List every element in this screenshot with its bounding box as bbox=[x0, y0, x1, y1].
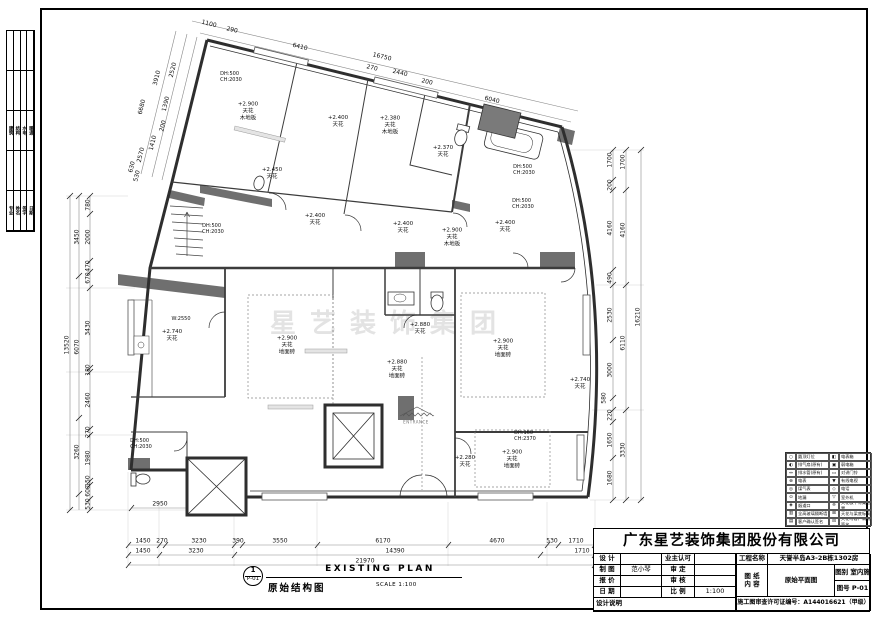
dimension-label: 1710 bbox=[574, 548, 589, 555]
room-label: +2.740天花 bbox=[570, 377, 590, 391]
legend-label: 室外机 bbox=[839, 493, 872, 501]
legend-label: 煤气表 bbox=[796, 485, 829, 493]
title-underline bbox=[266, 577, 462, 578]
value-approve bbox=[695, 565, 736, 576]
legend-label: 对讲门铃 bbox=[839, 469, 872, 477]
dimension-label: 6170 bbox=[375, 538, 390, 545]
sheet-no-cell: 图号 P-01 bbox=[835, 581, 871, 597]
legend-symbol: ▥ bbox=[786, 510, 796, 518]
room-label: +2.880天花地面砖 bbox=[387, 359, 407, 380]
strip-text: 暖通 bbox=[28, 126, 33, 135]
dimension-label: 16210 bbox=[635, 307, 642, 326]
legend-label: 客户确认签名 bbox=[796, 518, 829, 526]
dimension-label: 1650 bbox=[607, 432, 614, 447]
value-quote bbox=[621, 576, 662, 587]
room-label: +2.450天花 bbox=[262, 167, 282, 181]
label-design-notes: 设计说明 bbox=[594, 598, 736, 611]
value-design bbox=[621, 554, 662, 565]
dimension-label: 1980 bbox=[85, 450, 92, 465]
door-height-annotation: DH:500CH:2030 bbox=[512, 198, 534, 211]
dimension-label: 6110 bbox=[620, 335, 627, 350]
label-owner-ok: 业主认可 bbox=[662, 554, 695, 565]
dimension-label: 2950 bbox=[152, 501, 167, 508]
door-height-annotation: DH:160CH:2370 bbox=[514, 430, 536, 443]
symbol-legend: ○圆顶灯位◧电表箱 ◐排气扇(原有)▣弱电箱 ↔排水管(原有)▭对讲门铃 ⊕电表… bbox=[785, 452, 871, 527]
strip-text: 签字 bbox=[21, 206, 26, 215]
legend-symbol: ⊞ bbox=[829, 510, 839, 518]
strip-text: 水电 bbox=[21, 126, 26, 135]
legend-label: 圆顶灯位 bbox=[796, 453, 829, 461]
room-label: +2.400天花 bbox=[328, 115, 348, 129]
value-drawing-content: 原始平面图 bbox=[768, 565, 835, 597]
dimension-label: 670 bbox=[85, 272, 92, 283]
legend-label: 电表箱 bbox=[839, 453, 872, 461]
legend-symbol: ◇ bbox=[829, 485, 839, 493]
legend-label: 排气扇(原有) bbox=[796, 461, 829, 469]
legend-symbol: ※ bbox=[829, 502, 839, 510]
label-quote: 报 价 bbox=[594, 576, 621, 587]
legend-symbol: ▭ bbox=[829, 469, 839, 477]
value-review bbox=[695, 576, 736, 587]
dimension-label: 4670 bbox=[489, 538, 504, 545]
dimension-label: 13520 bbox=[64, 335, 71, 354]
dimension-label: 2000 bbox=[85, 229, 92, 244]
dimension-label: 4160 bbox=[607, 220, 614, 235]
door-height-annotation: DH:500CH:2030 bbox=[130, 438, 152, 451]
dimension-label: 14390 bbox=[385, 548, 404, 555]
dimension-label: 3450 bbox=[74, 229, 81, 244]
room-label: +2.280天花 bbox=[455, 455, 475, 469]
dimension-label: 270 bbox=[156, 538, 167, 545]
dimension-label: 1450 bbox=[135, 538, 150, 545]
legend-label: 天花与客户确认签名 bbox=[839, 518, 872, 526]
label-draft: 制 图 bbox=[594, 565, 621, 576]
legend-symbol: ⊙ bbox=[786, 493, 796, 501]
title-block-left: 设 计 业主认可 制 图 范小琴 审 定 报 价 审 核 日 期 比 例 1:1… bbox=[594, 554, 737, 611]
room-label: +2.900天花木地板 bbox=[238, 101, 258, 122]
title-block-right: 工程名称 天誉半岛A3-2B栋1302房 图 纸 内 容 原始平面图 图别 室内… bbox=[737, 554, 871, 611]
legend-symbol: ▣ bbox=[829, 461, 839, 469]
legend-symbol: ⊕ bbox=[786, 477, 796, 485]
room-label: +2.400天花 bbox=[305, 213, 325, 227]
legend-label: 排水管(原有) bbox=[796, 469, 829, 477]
dimension-label: 470 bbox=[85, 260, 92, 271]
dimension-label: 3000 bbox=[607, 362, 614, 377]
room-label: +2.380天花木地板 bbox=[380, 115, 400, 136]
label-date: 日 期 bbox=[594, 587, 621, 598]
dimension-label: 3330 bbox=[620, 442, 627, 457]
dimension-label: 530 bbox=[546, 538, 557, 545]
dimension-label: 4160 bbox=[620, 222, 627, 237]
permit-row: 施工图审查许可证编号：A144016621（甲级） bbox=[737, 597, 871, 611]
value-scale: 1:100 bbox=[695, 587, 736, 598]
legend-label: 弱电箱 bbox=[839, 461, 872, 469]
legend-symbol: ↔ bbox=[786, 469, 796, 477]
dimension-label: 600 bbox=[85, 485, 92, 496]
strip-text: 结构 bbox=[14, 126, 19, 135]
dimension-label: 220 bbox=[607, 409, 614, 420]
dimension-label: 2530 bbox=[607, 307, 614, 322]
legend-label: 电话 bbox=[839, 485, 872, 493]
dimension-label: 1680 bbox=[607, 470, 614, 485]
room-label: +2.740天花 bbox=[162, 329, 182, 343]
door-height-annotation: DH:500CH:2030 bbox=[513, 164, 535, 177]
legend-symbol: ◈ bbox=[786, 502, 796, 510]
room-label: +2.370天花 bbox=[433, 145, 453, 159]
legend-symbol: ⊟ bbox=[829, 518, 839, 526]
legend-symbol: ○ bbox=[786, 453, 796, 461]
room-label: +2.400天花 bbox=[393, 221, 413, 235]
value-draft-by: 范小琴 bbox=[621, 565, 662, 576]
value-owner-ok bbox=[695, 554, 736, 565]
dimension-label: 180 bbox=[85, 364, 92, 375]
label-approve: 审 定 bbox=[662, 565, 695, 576]
plan-title-english: EXISTING PLAN bbox=[300, 564, 460, 574]
legend-label: 地漏 bbox=[796, 493, 829, 501]
dimension-label: 390 bbox=[232, 538, 243, 545]
legend-label: 全高玻璃隔断墙 bbox=[796, 510, 829, 518]
detail-sheet-code: P-01 bbox=[243, 576, 263, 582]
dimension-label: 3230 bbox=[188, 548, 203, 555]
dimension-label: 580 bbox=[601, 392, 608, 403]
label-design: 设 计 bbox=[594, 554, 621, 565]
door-height-annotation: DH:500CH:2030 bbox=[220, 71, 242, 84]
legend-label: 烟道口 bbox=[796, 502, 829, 510]
detail-number: 1 bbox=[243, 566, 263, 574]
signature-strip: 建筑 结构 水电 暖通 专业 姓名 签字 日期 bbox=[6, 30, 35, 232]
title-block: 广东星艺装饰集团股份有限公司 设 计 业主认可 制 图 范小琴 审 定 报 价 … bbox=[593, 528, 870, 612]
legend-symbol: ◧ bbox=[829, 453, 839, 461]
window-width-annotation: W:2550 bbox=[171, 316, 190, 322]
dimension-label: 530 bbox=[85, 498, 92, 509]
plan-scale: SCALE 1:100 bbox=[376, 582, 417, 588]
dimension-label: 3430 bbox=[85, 320, 92, 335]
label-scale: 比 例 bbox=[662, 587, 695, 598]
label-drawing-content: 图 纸 内 容 bbox=[737, 565, 768, 597]
strip-text: 日期 bbox=[28, 206, 33, 215]
dimension-label: 1700 bbox=[607, 152, 614, 167]
room-label: +2.880天花 bbox=[410, 322, 430, 336]
dimension-label: 490 bbox=[607, 272, 614, 283]
value-date bbox=[621, 587, 662, 598]
label-project-name: 工程名称 bbox=[737, 554, 768, 565]
dimension-label: 3230 bbox=[191, 538, 206, 545]
value-project: 天誉半岛A3-2B栋1302房 bbox=[768, 554, 871, 565]
room-label: +2.400天花 bbox=[495, 220, 515, 234]
door-height-annotation: DH:500CH:2030 bbox=[202, 223, 224, 236]
room-label: +2.900天花地面砖 bbox=[493, 338, 513, 359]
dimension-label: 1710 bbox=[568, 538, 583, 545]
drawing-sheet: 星艺装饰集团 bbox=[0, 0, 878, 620]
dimension-label: 270 bbox=[85, 426, 92, 437]
dimension-label: 1450 bbox=[135, 548, 150, 555]
company-name: 广东星艺装饰集团股份有限公司 bbox=[594, 529, 869, 554]
strip-text: 姓名 bbox=[14, 206, 19, 215]
dimension-label: 2460 bbox=[85, 392, 92, 407]
legend-label: 天花与梁底标高 bbox=[839, 510, 872, 518]
dimension-label: 780 bbox=[85, 199, 92, 210]
legend-symbol: ◐ bbox=[786, 461, 796, 469]
strip-text: 专业 bbox=[8, 206, 13, 215]
legend-symbol: ◎ bbox=[786, 485, 796, 493]
legend-symbol: ▤ bbox=[786, 518, 796, 526]
legend-symbol: ▽ bbox=[829, 493, 839, 501]
dimension-label: 3260 bbox=[74, 444, 81, 459]
room-label: +2.900天花地面砖 bbox=[277, 335, 297, 356]
entrance-label: ENTRANCE bbox=[403, 420, 429, 425]
legend-label: 天花板下有梁位置 bbox=[839, 502, 872, 510]
dimension-label: 1700 bbox=[620, 154, 627, 169]
room-label: +2.900天花木地板 bbox=[442, 227, 462, 248]
category-cell: 图别 室内施 bbox=[835, 565, 871, 581]
dimension-label: 3550 bbox=[272, 538, 287, 545]
dimension-label: 6070 bbox=[74, 339, 81, 354]
floor-plan-drawing bbox=[0, 0, 878, 620]
dimension-label: 200 bbox=[607, 179, 614, 190]
label-review: 审 核 bbox=[662, 576, 695, 587]
legend-label: 电表 bbox=[796, 477, 829, 485]
plan-title-chinese: 原始结构图 bbox=[268, 580, 326, 594]
strip-text: 建筑 bbox=[8, 126, 13, 135]
legend-label: 有线电视 bbox=[839, 477, 872, 485]
legend-symbol: ▼ bbox=[829, 477, 839, 485]
room-label: +2.900天花地面砖 bbox=[502, 449, 522, 470]
